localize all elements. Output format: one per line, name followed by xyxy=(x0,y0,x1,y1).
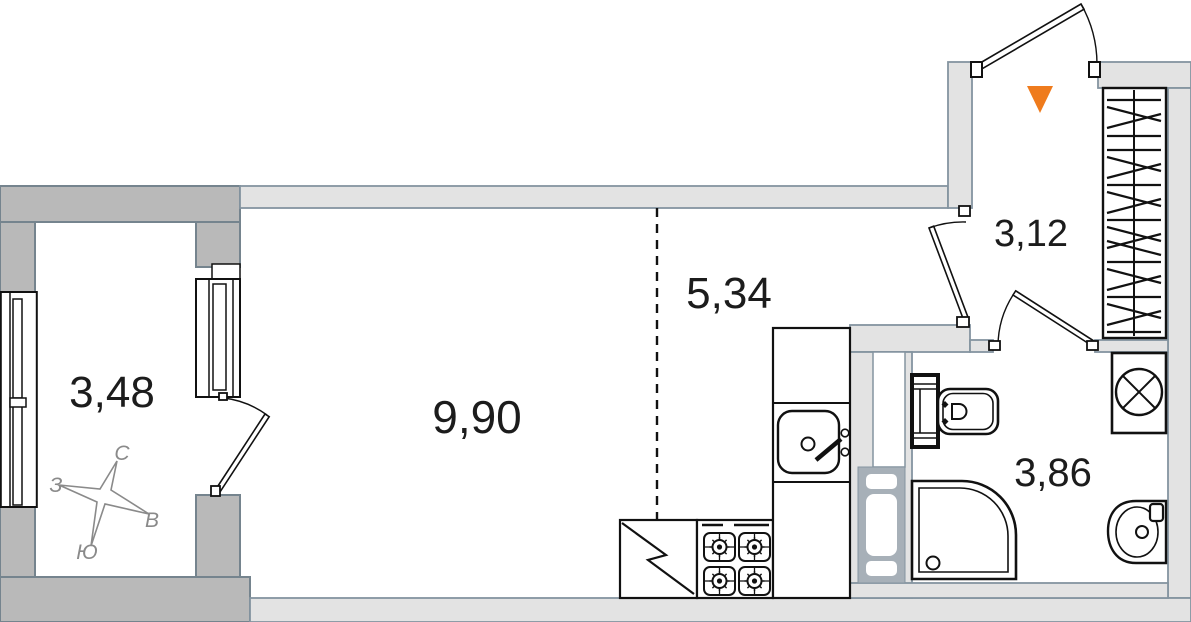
shower-icon xyxy=(912,481,1016,579)
floor-plan-canvas: 3,48 9,90 5,34 3,12 3,86 С З В Ю xyxy=(0,0,1191,622)
door-jamb xyxy=(1087,341,1098,350)
wall-bottom xyxy=(250,598,1191,622)
stove-icon xyxy=(697,520,773,598)
duct-icon xyxy=(866,561,897,576)
duct-icon xyxy=(866,494,897,556)
duct-icon xyxy=(866,474,897,489)
compass-south-label: Ю xyxy=(76,541,97,564)
door-jamb xyxy=(1089,62,1100,77)
living-room-area-label: 9,90 xyxy=(432,391,522,443)
door-jamb xyxy=(957,317,969,327)
faucet-icon xyxy=(1150,504,1163,521)
compass-east-label: В xyxy=(145,509,159,532)
compass-west-label: З xyxy=(50,474,63,497)
drain-icon xyxy=(927,557,940,570)
door-jamb xyxy=(211,486,220,496)
floor-plan: 3,48 9,90 5,34 3,12 3,86 С З В Ю xyxy=(0,0,1191,622)
kitchen-sink-icon xyxy=(778,411,849,473)
fridge-icon xyxy=(620,520,697,598)
bathroom-area-label: 3,86 xyxy=(1014,451,1092,495)
compass-north-label: С xyxy=(114,442,130,465)
door-jamb xyxy=(989,341,1000,350)
balcony-area-label: 3,48 xyxy=(69,368,155,417)
toilet-tank xyxy=(912,375,938,447)
wall-entry-right xyxy=(1098,62,1191,88)
bathroom-sink-icon xyxy=(1108,501,1166,563)
drain-icon xyxy=(1136,526,1148,538)
wall-right xyxy=(1168,88,1191,598)
wall-bath-bottom xyxy=(850,583,1168,598)
balcony-window-west xyxy=(1,292,37,507)
door-jamb xyxy=(219,393,227,400)
door-jamb xyxy=(971,62,982,77)
wardrobe-icon xyxy=(1103,88,1166,338)
balcony-window-door-unit xyxy=(196,264,240,397)
wall-bath-top xyxy=(850,325,970,352)
kitchen-area-label: 5,34 xyxy=(686,269,772,318)
hallway-area-label: 3,12 xyxy=(994,213,1068,255)
door-jamb xyxy=(959,206,970,216)
wall-hall-left xyxy=(948,62,972,208)
wall-top xyxy=(240,186,948,208)
washing-machine-icon xyxy=(1112,353,1166,433)
